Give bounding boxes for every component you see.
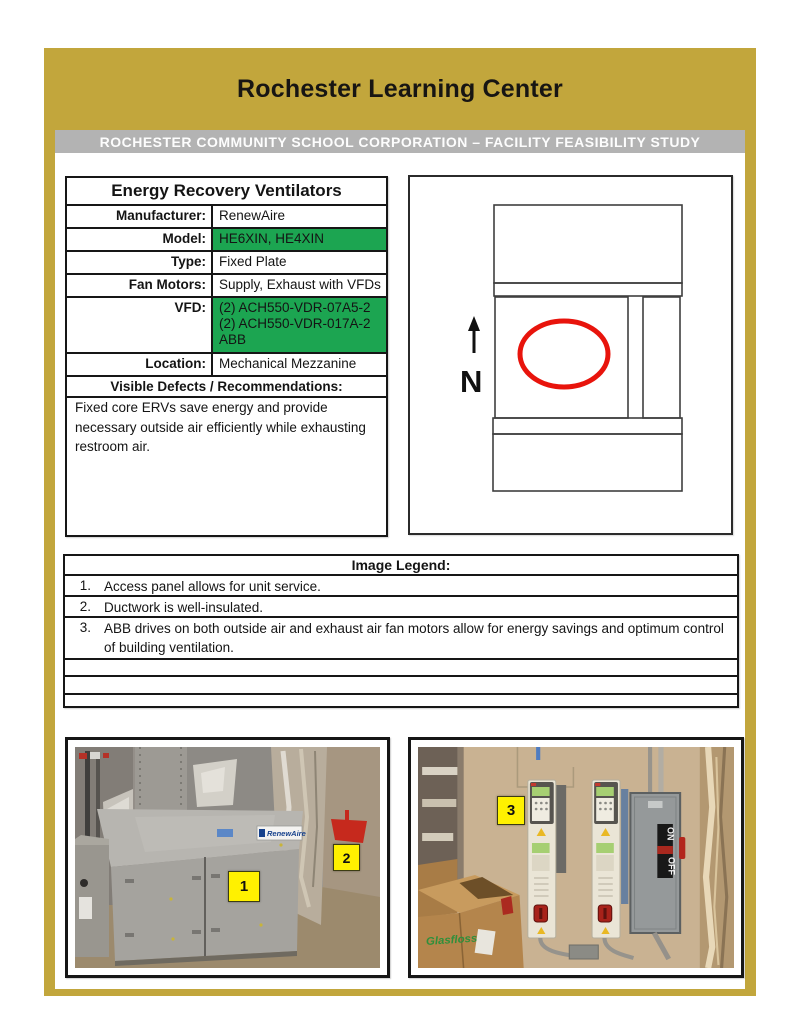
plan-room-bottom [493,434,682,491]
vfd-drive [528,780,556,938]
conduit [658,747,663,795]
spec-label: Type: [67,252,213,273]
spec-row-manufacturer: Manufacturer: RenewAire [67,206,386,229]
subtitle-banner: ROCHESTER COMMUNITY SCHOOL CORPORATION –… [55,130,745,153]
plan-corridor-top [494,283,682,296]
legend-number: 1. [65,576,91,593]
floor-plan-box: N [408,175,733,535]
notes-text: Fixed core ERVs save energy and provide … [67,398,386,457]
image-marker-2: 2 [333,844,360,871]
spec-row-fan-motors: Fan Motors: Supply, Exhaust with VFDs [67,275,386,298]
legend-title: Image Legend: [65,556,737,576]
photo-frame-vfd: ON OFF [408,737,744,978]
legend-row: 2. Ductwork is well-insulated. [65,597,737,618]
legend-empty-row [65,660,737,677]
legend-number: 3. [65,618,91,635]
red-dustpan [331,819,367,843]
legend-text: Ductwork is well-insulated. [91,597,737,618]
red-circle-annotation [520,321,608,387]
legend-empty-row [65,677,737,695]
disconnect-panel: ON OFF [630,793,685,933]
conduit [648,747,652,795]
spec-label: Fan Motors: [67,275,213,296]
spec-value-highlighted: (2) ACH550-VDR-07A5-2 (2) ACH550-VDR-017… [213,298,386,352]
erv-photo: RenewAire 1 2 [75,747,380,968]
spec-label: Manufacturer: [67,206,213,227]
floor-plan: N [410,177,731,533]
report-header: Rochester Learning Center [55,48,745,130]
north-arrow-icon [468,316,480,353]
legend-row: 3. ABB drives on both outside air and ex… [65,618,737,660]
vfd-line: (2) ACH550-VDR-07A5-2 [219,300,386,316]
junction-box [569,945,598,959]
spec-label: VFD: [67,298,213,352]
vfd-line: ABB [219,332,386,348]
off-label: OFF [667,857,677,875]
vfd-line: (2) ACH550-VDR-017A-2 [219,316,386,332]
spec-value: Supply, Exhaust with VFDs [213,275,386,296]
page-content: Energy Recovery Ventilators Manufacturer… [55,153,745,989]
vfd-photo: ON OFF [418,747,734,968]
spec-value: Fixed Plate [213,252,386,273]
on-label: ON [666,827,676,840]
report-page: Rochester Learning Center ROCHESTER COMM… [44,48,756,996]
legend-number: 2. [65,597,91,614]
spec-label: Location: [67,354,213,375]
spec-table: Energy Recovery Ventilators Manufacturer… [65,176,388,537]
spec-value: RenewAire [213,206,386,227]
spec-row-model: Model: HE6XIN, HE4XIN [67,229,386,252]
spec-label: Model: [67,229,213,250]
legend-row: 1. Access panel allows for unit service. [65,576,737,597]
spec-value-highlighted: HE6XIN, HE4XIN [213,229,386,250]
renewaire-label-text: RenewAire [267,829,306,838]
blue-sticker [217,829,233,837]
plan-room-right [643,297,680,418]
north-label: N [460,364,482,399]
vfd-drive [592,780,620,938]
legend-text: Access panel allows for unit service. [91,576,737,597]
page-title: Rochester Learning Center [237,75,563,104]
red-handle [679,837,685,859]
image-marker-1: 1 [228,871,260,902]
blue-conduit [536,747,540,760]
photo-frame-erv: RenewAire 1 2 [65,737,390,978]
legend-table: Image Legend: 1. Access panel allows for… [63,554,739,708]
plan-corridor-bottom [493,418,682,434]
spec-table-title: Energy Recovery Ventilators [67,178,386,206]
spec-row-vfd: VFD: (2) ACH550-VDR-07A5-2 (2) ACH550-VD… [67,298,386,354]
legend-text: ABB drives on both outside air and exhau… [91,618,737,658]
defects-header: Visible Defects / Recommendations: [67,377,386,398]
spec-value: Mechanical Mezzanine [213,354,386,375]
spec-row-type: Type: Fixed Plate [67,252,386,275]
plan-room-top [494,205,682,283]
spec-row-location: Location: Mechanical Mezzanine [67,354,386,377]
image-marker-3: 3 [497,796,525,825]
vfd-photo-art: ON OFF [418,747,734,968]
